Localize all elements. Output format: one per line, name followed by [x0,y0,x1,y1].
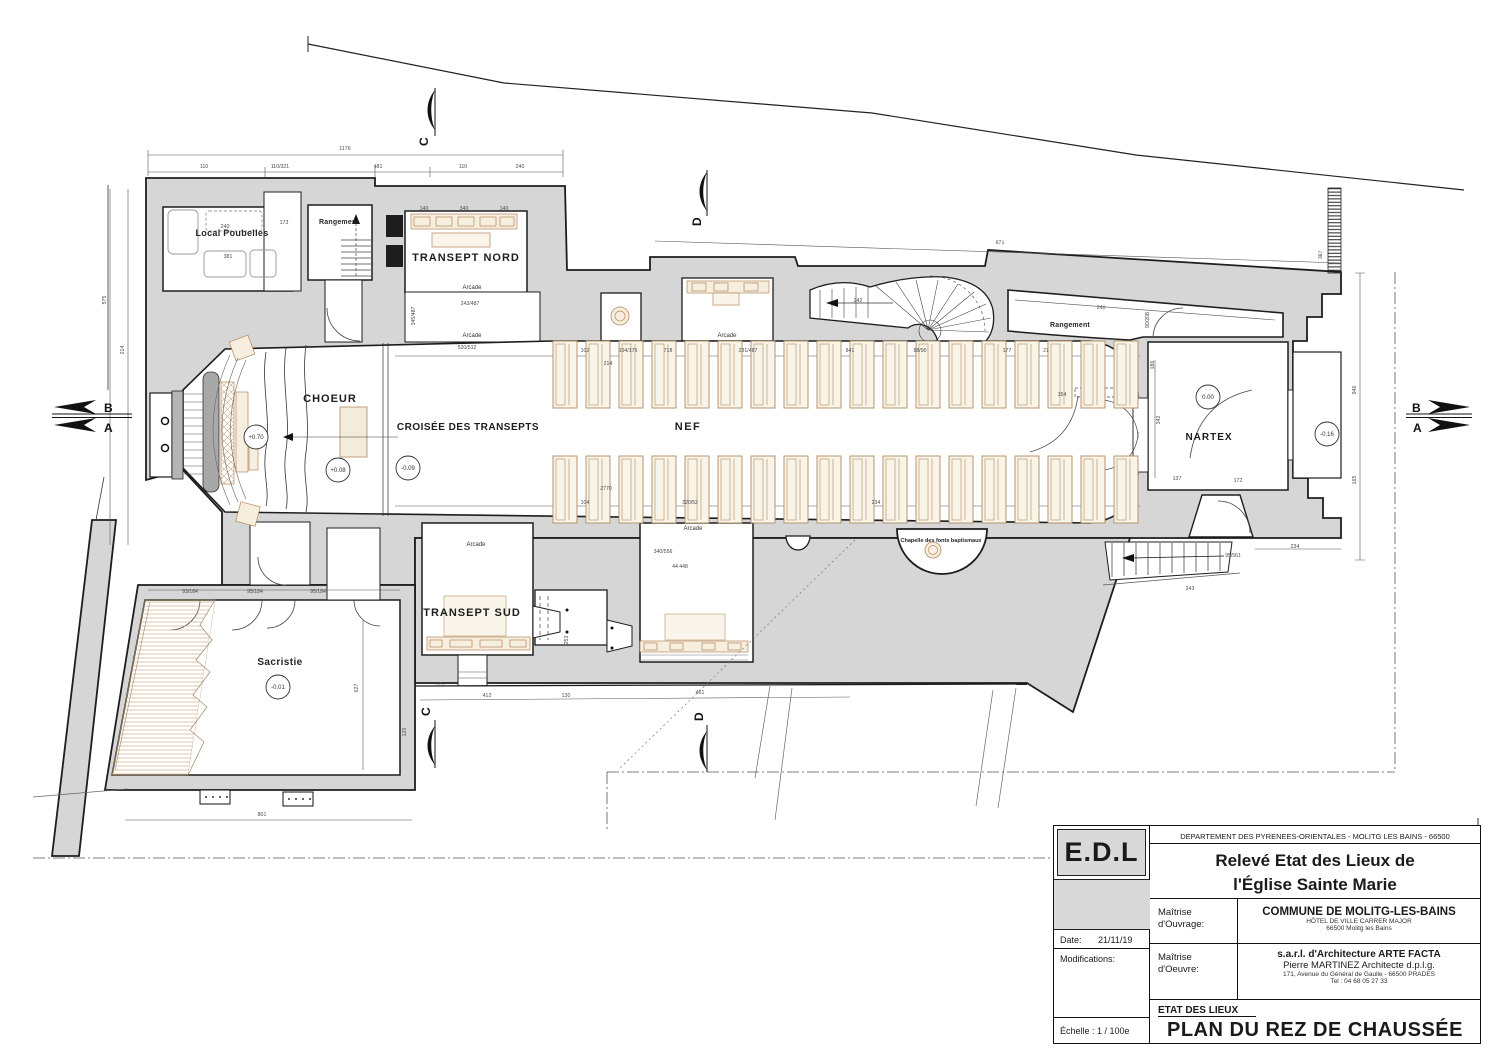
dimension-text: 240 [516,164,525,170]
gond-portail-1 [162,418,169,425]
dimension-text: 381 [224,254,233,260]
scale-label: Échelle : 1 / 100e [1054,1017,1150,1043]
project-title-line1: Relevé Etat des Lieux de [1150,849,1480,873]
dimension-text: 243 [1186,586,1195,592]
dimension-text: 110/321 [271,164,289,170]
section-letter: A [104,421,113,435]
dimension-text: 177 [1003,348,1012,354]
section-letter: B [1412,401,1421,415]
sheet-title: PLAN DU REZ DE CHAUSSÉE [1150,1016,1480,1042]
department-line: DEPARTEMENT DES PYRENEES-ORIENTALES - MO… [1150,826,1480,844]
section-letter: D [692,712,706,721]
phase-line: ETAT DES LIEUX [1150,1000,1480,1016]
dimension-text: 110 [459,164,467,170]
retable-slab [203,372,219,492]
autel-chapelle-sud [665,614,725,640]
date-value: 21/11/19 [1098,935,1132,945]
room-nartex [1148,342,1288,490]
dimension-text: 575 [102,296,108,305]
level-value: 0.00 [1202,395,1214,401]
modifications-label: Modifications: [1054,954,1150,964]
maitrise-oeuvre-label: Maîtrise d'Oeuvre: [1150,944,1238,999]
section-letter: B [104,401,113,415]
autel-choeur [340,407,367,457]
dimension-text: 243/487 [461,301,480,307]
dimension-text: 104 [581,500,590,506]
level-value: -0.09 [401,466,415,472]
room-label-rangement-nord: Rangement [1050,322,1090,329]
title-block: E.D.L Date: 21/11/19 Modifications: Éche… [1053,825,1481,1044]
maitrise-oeuvre-row: Maîtrise d'Oeuvre: s.a.r.l. d'Architectu… [1150,944,1480,1000]
dimension-text: 88/90 [914,348,927,354]
arcade-label: Arcade [462,285,482,291]
wall-stub-1 [386,215,403,237]
dimension-text: 95/184 [247,589,263,595]
pilier-dot-2 [566,631,569,634]
dimension-text: 21 [1043,348,1049,354]
arcade-label: Arcade [462,333,482,339]
section-letter: C [417,137,431,146]
room-label-transept-nord: TRANSEPT NORD [412,252,520,264]
passage-stair-crossing [325,280,362,342]
dimension-text: 102 [581,348,590,354]
stub-transept-sud [458,655,487,686]
maitrise-ouvrage-row: Maîtrise d'Ouvrage: COMMUNE DE MOLITG-LE… [1150,899,1480,944]
room-label-nartex: NARTEX [1185,432,1232,443]
dimension-text: 345/487 [411,307,417,326]
portail-ouest [150,393,172,477]
room-label-rangement-ouest: Rangement [319,219,359,226]
maitrise-oeuvre-value: s.a.r.l. d'Architecture ARTE FACTA Pierr… [1238,944,1480,985]
oeuvre-name: s.a.r.l. d'Architecture ARTE FACTA [1238,944,1480,960]
pilier-dot-3 [611,627,614,630]
passage-nord-ouest [264,192,301,291]
arcade-label: Arcade [717,333,737,339]
floor-plan-sheet: 1176110110/32148111024057521424038117387… [0,0,1500,1060]
dimension-text: 627 [354,684,360,693]
oeuvre-tel: Tel : 04 68 05 27 33 [1238,978,1480,985]
gond-portail-2 [162,445,169,452]
dimension-text: 775 [436,682,445,688]
dimension-text: 340 [460,206,469,212]
date-label: Date: [1060,935,1082,945]
dimension-text: 234 [1291,544,1300,550]
maitrise-ouvrage-value: COMMUNE DE MOLITG-LES-BAINS HÔTEL DE VIL… [1238,899,1480,932]
project-title-line2: l'Église Sainte Marie [1150,873,1480,897]
dimension-text: 481 [374,164,383,170]
level-value: -0.01 [271,685,285,691]
oeuvre-architect: Pierre MARTINEZ Architecte d.p.l.g. [1238,960,1480,971]
room-label-transept-sud: TRANSEPT SUD [423,607,521,619]
logo: E.D.L [1057,829,1146,876]
dimension-text: 214 [604,361,613,367]
passage-choeur-sud [250,522,310,585]
dimension-text: 387 [1318,250,1325,259]
dimension-text: 140 [420,206,429,212]
dimension-text: 120 [402,728,408,737]
room-label-choeur: CHOEUR [303,393,357,405]
room-label-croisee: CROISÉE DES TRANSEPTS [397,420,539,433]
wall-stub-2 [386,245,403,267]
dimension-text: 95/184 [310,589,326,595]
dimension-text: 841 [846,348,855,354]
section-letter: D [690,217,704,226]
arcade-label: Arcade [466,542,486,548]
dimension-text: 253 [564,636,570,645]
dimension-text: 130 [562,693,571,699]
level-value: +0.70 [248,435,264,441]
dimension-text: 231/487 [739,348,758,354]
room-label-nef: NEF [675,421,702,433]
dimension-text: 154 [1058,392,1067,398]
dimension-text: 340/556 [654,549,673,555]
retable-hatch [221,382,234,484]
room-label-chapelle-fonts: Chapelle des fonts baptismaux [901,538,983,544]
arcade-label: Arcade [683,526,703,532]
ouvrage-addr2: 66500 Molitg les Bains [1238,925,1480,932]
dimension-text: 234 [872,500,881,506]
dimension-text: 1176 [339,146,350,152]
section-letter: C [419,707,433,716]
title-block-right-column: DEPARTEMENT DES PYRENEES-ORIENTALES - MO… [1150,826,1480,1043]
porche-est [1293,352,1341,478]
date-row: Date: 21/11/19 [1054,932,1150,949]
dimension-text: 240 [1097,305,1106,312]
level-value: -0.16 [1320,432,1334,438]
dimension-text: 172 [1234,478,1243,484]
dimension-text: 342 [1156,416,1162,425]
mur-mitoyen-hachure [1328,188,1341,273]
dimension-text: 320/52 [682,500,698,506]
logo-spacer [1054,879,1150,930]
dimension-text: 140 [500,206,509,212]
dimension-text: 173 [280,220,289,226]
section-letter: A [1413,421,1422,435]
dimension-text: 520/512 [458,345,477,351]
dimension-text: 110 [200,164,208,170]
dimension-text: 214 [120,346,126,355]
contrefort-ouest [533,606,560,638]
rosace-niche [611,307,629,325]
oeuvre-addr: 171, Avenue du Général de Gaulle - 66500… [1238,971,1480,978]
west-wall-slab [172,391,183,479]
dimension-text: 242 [854,298,863,304]
dimension-text: 95/561 [1225,553,1241,559]
dimension-text: 412 [483,693,492,699]
pilier-dot-1 [566,609,569,612]
maitrise-ouvrage-label: Maîtrise d'Ouvrage: [1150,899,1238,943]
dimension-text: 461 [696,690,705,696]
dimension-text: 44 448 [672,564,688,570]
fonts-baptismaux [925,542,941,558]
dimension-text: 104/175 [619,348,638,354]
project-title: Relevé Etat des Lieux de l'Église Sainte… [1150,844,1480,899]
dimension-text: 871 [996,240,1005,246]
dimension-text: 718 [664,348,673,354]
banc-transept-sud [427,637,530,650]
dimension-text: 90/208 [1145,312,1151,328]
ouvrage-addr1: HÔTEL DE VILLE CARRER MAJOR [1238,918,1480,925]
room-rangement-ouest [308,205,372,280]
dimension-text: 137 [1173,476,1182,482]
dimension-text: 2770 [600,486,612,492]
banc-chapelle-sud [640,641,748,652]
room-label-sacristie: Sacristie [257,657,302,668]
dimension-text: 93/184 [182,589,198,595]
ouvrage-name: COMMUNE DE MOLITG-LES-BAINS [1238,899,1480,918]
dimension-text: 946 [1352,386,1358,395]
couloir-sacristie [327,528,380,600]
pilier-dot-4 [611,647,614,650]
title-block-left-column: E.D.L Date: 21/11/19 Modifications: Éche… [1054,826,1150,1043]
dimension-text: 186 [1150,361,1156,370]
level-value: +0.08 [330,468,346,474]
dimension-text: 801 [258,812,267,818]
dimension-text: 165 [1352,476,1358,485]
room-label-local-poubelles: Local Poubelles [195,228,268,238]
